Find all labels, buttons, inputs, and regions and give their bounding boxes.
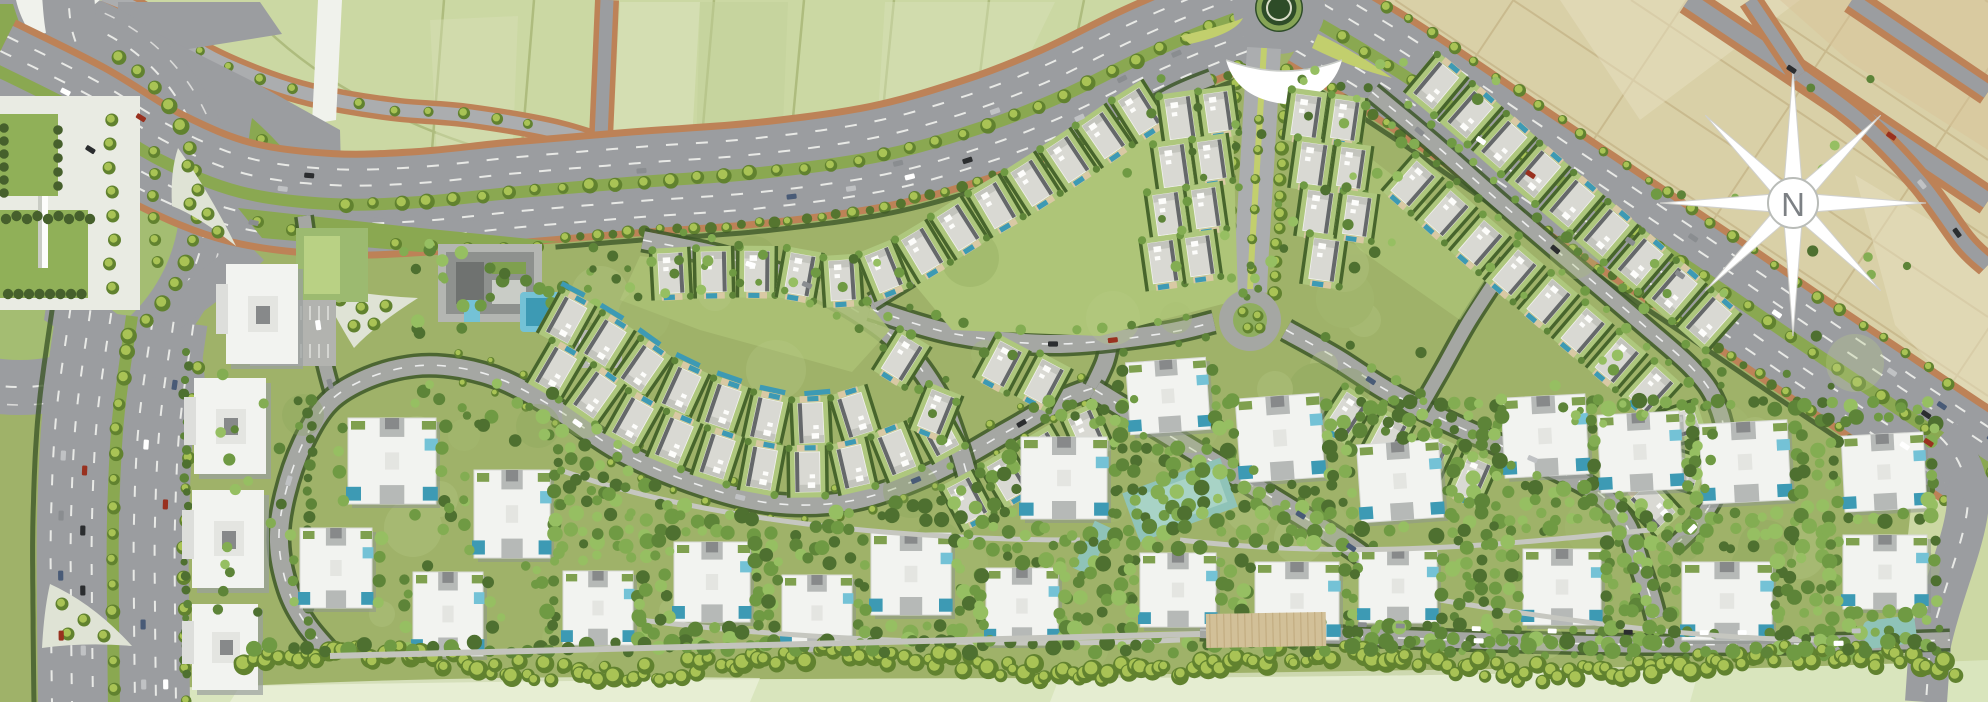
svg-text:N: N bbox=[1781, 186, 1805, 223]
